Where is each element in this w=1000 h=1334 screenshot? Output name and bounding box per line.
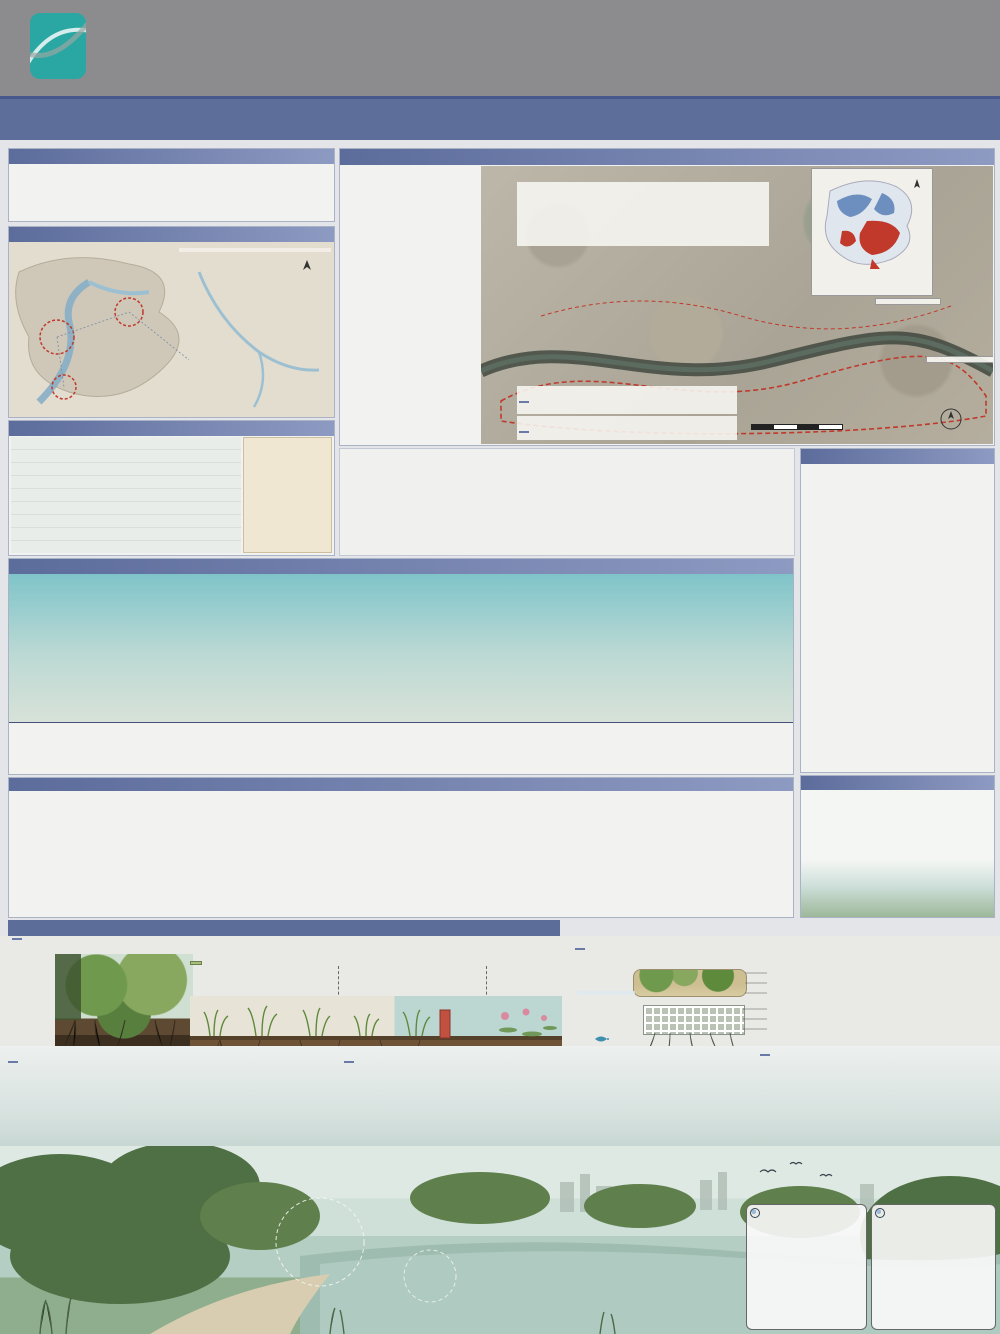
eco-history-timeline bbox=[9, 722, 793, 734]
design-notes-panel bbox=[8, 148, 335, 222]
region-compare-bar-chart bbox=[871, 1204, 996, 1330]
eco-history-captions bbox=[9, 734, 793, 774]
downstream-plants-group bbox=[660, 1048, 996, 1144]
project-title-bar bbox=[0, 96, 1000, 140]
plan-title bbox=[340, 149, 994, 165]
evolution-panel bbox=[800, 448, 995, 773]
island-top-mat bbox=[633, 969, 747, 997]
evolution-diagrams bbox=[913, 465, 993, 771]
master-plan-panel bbox=[339, 148, 995, 446]
midstream-plants-chip bbox=[344, 1061, 354, 1063]
crowd-icon-panel bbox=[243, 437, 332, 553]
downstream-plants-chip bbox=[760, 1054, 770, 1056]
plan-analysis-box bbox=[517, 182, 769, 246]
climate-box bbox=[517, 386, 737, 414]
strategy-banner bbox=[8, 920, 560, 936]
logic-derivation-panel bbox=[8, 777, 794, 918]
header-bar bbox=[0, 0, 1000, 96]
biodiversity-panel bbox=[800, 775, 995, 918]
landuse-minimap bbox=[811, 168, 933, 296]
island-cage bbox=[643, 1005, 745, 1035]
island-side-note bbox=[577, 991, 635, 995]
biodiversity-title bbox=[801, 776, 994, 790]
scale-bar bbox=[751, 424, 843, 430]
crowd-analysis-panel bbox=[8, 420, 335, 556]
upstream-plants-chip bbox=[8, 1061, 18, 1063]
chart-icon bbox=[750, 1208, 760, 1218]
upstream-plants-group bbox=[8, 1048, 332, 1144]
competition-poster bbox=[0, 0, 1000, 1334]
aerial-map bbox=[481, 166, 993, 444]
forest-collage bbox=[55, 954, 193, 1058]
location-note bbox=[179, 248, 331, 252]
minimap-legend bbox=[875, 298, 941, 305]
design-notes-body bbox=[9, 164, 334, 170]
eco-history-panel bbox=[8, 558, 794, 775]
floating-island-chip bbox=[575, 948, 585, 950]
analysis-maps-band bbox=[339, 448, 795, 556]
plan-submaps bbox=[343, 168, 479, 444]
crowd-title bbox=[9, 421, 334, 436]
initial-plan-box bbox=[517, 416, 737, 440]
segment-purify-chip bbox=[12, 938, 22, 940]
location-title bbox=[9, 227, 334, 242]
water-quality-line-chart bbox=[746, 1204, 867, 1330]
crowd-collage bbox=[11, 437, 241, 553]
yuanye-logo-icon bbox=[30, 13, 86, 79]
eco-filter-section bbox=[190, 950, 562, 1058]
eco-filter-chip bbox=[190, 961, 202, 965]
midstream-plants-group bbox=[336, 1048, 660, 1144]
eco-history-panorama bbox=[9, 574, 793, 722]
aerial-legend bbox=[926, 356, 993, 363]
floating-island-section bbox=[575, 935, 797, 1058]
logic-problem-photos bbox=[11, 792, 473, 916]
location-map bbox=[9, 242, 334, 417]
initial-plan-title bbox=[519, 431, 529, 433]
climate-title bbox=[519, 401, 529, 403]
design-notes-title bbox=[9, 149, 334, 164]
evolution-title bbox=[801, 449, 994, 464]
logic-title bbox=[9, 778, 793, 791]
eco-history-title bbox=[9, 559, 793, 574]
location-culture-panel bbox=[8, 226, 335, 418]
chart-icon bbox=[875, 1208, 885, 1218]
biodiversity-diagram bbox=[801, 790, 994, 917]
